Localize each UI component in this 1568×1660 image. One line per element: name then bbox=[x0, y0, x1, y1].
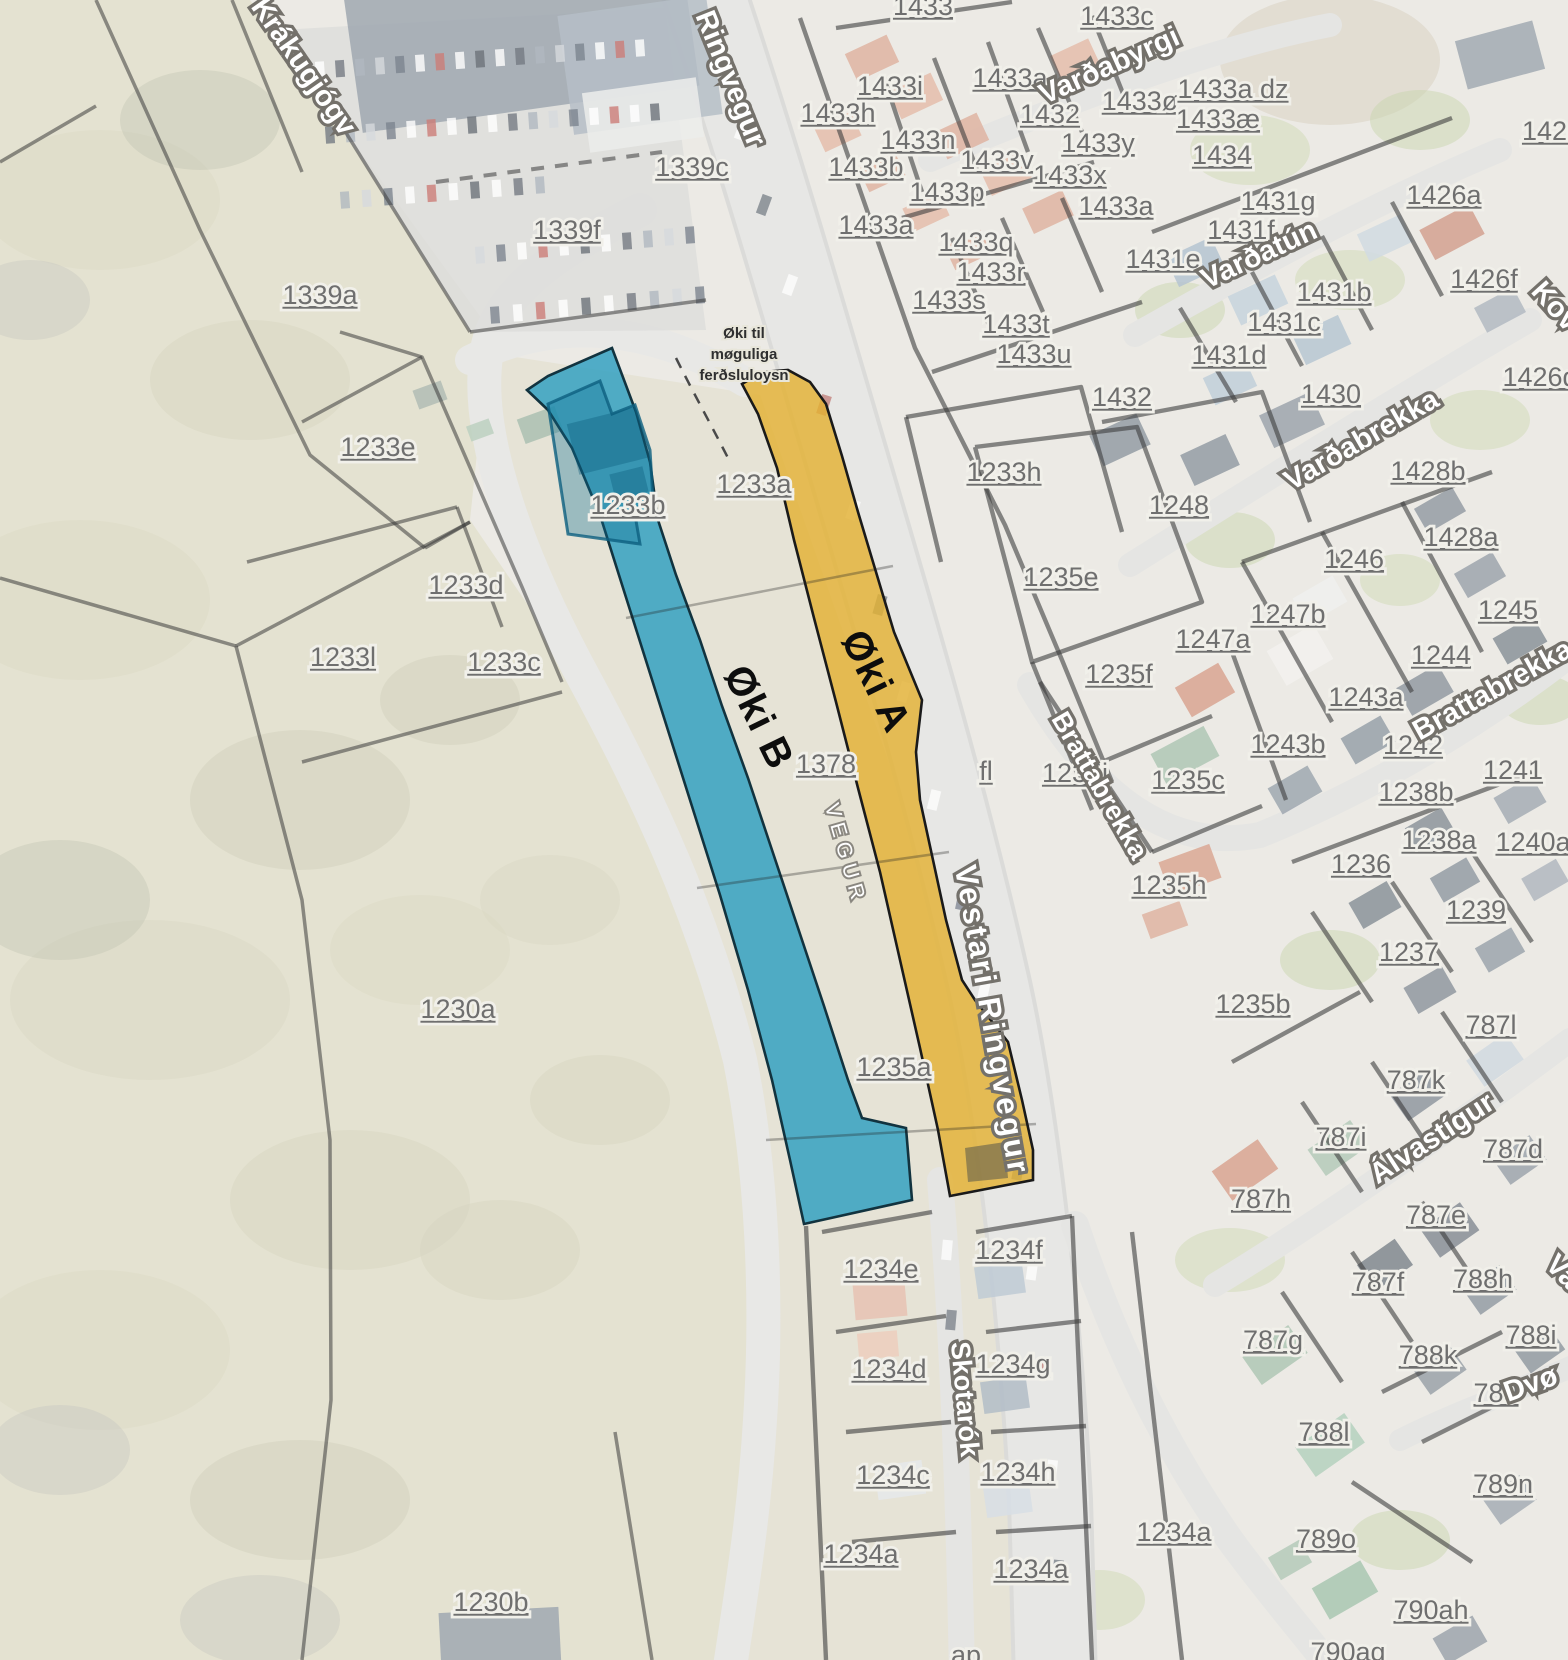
annotation-line: møguliga bbox=[711, 346, 778, 363]
parcel-label: 790ah bbox=[1393, 1595, 1468, 1625]
parcel-label: 1234f bbox=[975, 1235, 1043, 1265]
parcel-label: 1247b bbox=[1250, 599, 1325, 629]
parcel-label: 1433h bbox=[800, 98, 875, 128]
parcel-label: 1247a bbox=[1175, 624, 1251, 654]
annotation-line: Øki til bbox=[723, 325, 765, 342]
parcel-label: 1433i bbox=[857, 71, 923, 101]
parcel-label: 1235e bbox=[1023, 562, 1098, 592]
parcel-label: 1432 bbox=[1092, 382, 1152, 412]
parcel-label: 1431d bbox=[1191, 340, 1266, 370]
parcel-label: 1243b bbox=[1250, 729, 1325, 759]
parcel-label: 1434 bbox=[1192, 140, 1252, 170]
parcel-label: 1233a bbox=[716, 469, 792, 499]
parcel-label: 1433 bbox=[893, 0, 953, 21]
parcel-label: 1234a bbox=[1136, 1517, 1212, 1547]
parcel-label: 1243a bbox=[1328, 682, 1404, 712]
parcel-label: 1339a bbox=[282, 280, 358, 310]
parcel-label: 1433ø bbox=[1102, 86, 1179, 116]
parcel-label: 1239 bbox=[1446, 895, 1506, 925]
parcel-label: 1235a bbox=[856, 1052, 932, 1082]
parcel-label: 1234c bbox=[856, 1460, 930, 1490]
parcel-label: 1241 bbox=[1483, 755, 1543, 785]
parcel-label: 1233b bbox=[590, 490, 665, 520]
parcel-label: 1433æ bbox=[1176, 104, 1260, 134]
parcel-label: 1233h bbox=[966, 457, 1041, 487]
parcel-label: 1428a bbox=[1423, 522, 1499, 552]
annotation-line: ferðsluloysn bbox=[699, 367, 788, 384]
parcel-label: ap bbox=[951, 1640, 981, 1660]
parcel-label: 1234a bbox=[823, 1539, 899, 1569]
parcel-label: 1234d bbox=[851, 1354, 926, 1384]
parcel-label: 1433u bbox=[996, 339, 1071, 369]
parcel-label: 1234g bbox=[975, 1349, 1050, 1379]
parcel-label: 1426 bbox=[1522, 116, 1568, 146]
parcel-label: 1248 bbox=[1149, 490, 1209, 520]
parcel-label: 1431c bbox=[1247, 307, 1321, 337]
parcel-label: 1433s bbox=[912, 285, 986, 315]
parcel-label: 1433a dz bbox=[1177, 74, 1288, 104]
parcel-label: 1237 bbox=[1379, 937, 1439, 967]
parcel-label: 787f bbox=[1352, 1267, 1405, 1297]
parcel-label: 787h bbox=[1231, 1184, 1291, 1214]
parcel-label: 788l bbox=[1298, 1417, 1349, 1447]
parcel-label: 787k bbox=[1387, 1065, 1446, 1095]
map-svg: 14331433c1433i1433h1433a14321433ø1433y14… bbox=[0, 0, 1568, 1660]
parcel-label: 1235f bbox=[1085, 659, 1153, 689]
parcel-label: 788i bbox=[1505, 1320, 1556, 1350]
parcel-label: 1430 bbox=[1301, 379, 1361, 409]
parcel-label: 1433y bbox=[1061, 128, 1135, 158]
parcel-label: 1431g bbox=[1240, 186, 1315, 216]
parcel-label: fl bbox=[979, 756, 993, 786]
parcel-label: 1240a bbox=[1495, 827, 1568, 857]
parcel-label: 1245 bbox=[1478, 595, 1538, 625]
parcel-label: 1433c bbox=[1080, 1, 1154, 31]
parcel-label: 788k bbox=[1399, 1340, 1458, 1370]
parcel-label: 788h bbox=[1453, 1264, 1513, 1294]
parcel-label: 789o bbox=[1296, 1524, 1356, 1554]
parcel-label: 1234e bbox=[843, 1254, 918, 1284]
parcel-label: 1426a bbox=[1406, 180, 1482, 210]
parcel-label: 789n bbox=[1473, 1469, 1533, 1499]
parcel-label: 1339f bbox=[533, 215, 601, 245]
parcel-label: 790ag bbox=[1310, 1637, 1385, 1660]
parcel-label: 1246 bbox=[1324, 544, 1384, 574]
parcel-label: 1433t bbox=[982, 309, 1050, 339]
parcel-label: 1235h bbox=[1131, 870, 1206, 900]
parcel-label: 1236 bbox=[1331, 849, 1391, 879]
parcel-label: 1433b bbox=[828, 152, 903, 182]
parcel-label: 787l bbox=[1465, 1010, 1516, 1040]
map-canvas[interactable]: 14331433c1433i1433h1433a14321433ø1433y14… bbox=[0, 0, 1568, 1660]
parcel-label: 1431b bbox=[1296, 277, 1371, 307]
parcel-label: 787i bbox=[1315, 1122, 1366, 1152]
parcel-label: 787g bbox=[1243, 1325, 1303, 1355]
parcel-label: 1244 bbox=[1411, 640, 1471, 670]
parcel-label: 1378 bbox=[796, 749, 856, 779]
parcel-label: 1433q bbox=[938, 227, 1013, 257]
parcel-label: 1433a bbox=[838, 210, 914, 240]
parcel-label: 1230b bbox=[453, 1587, 528, 1617]
parcel-label: 1235b bbox=[1215, 989, 1290, 1019]
parcel-label: 1234a bbox=[993, 1554, 1069, 1584]
parcel-label: 1238b bbox=[1378, 777, 1453, 807]
parcel-label: 1428b bbox=[1390, 456, 1465, 486]
parcel-label: 1433a bbox=[1078, 191, 1154, 221]
parcel-label: 1426d bbox=[1502, 362, 1568, 392]
parcel-label: 1230a bbox=[420, 994, 496, 1024]
parcel-label: 1238a bbox=[1401, 825, 1477, 855]
parcel-label: 1233e bbox=[340, 432, 415, 462]
parcel-label: 787d bbox=[1483, 1134, 1543, 1164]
parcel-label: 1233l bbox=[310, 642, 376, 672]
parcel-label: 1433n bbox=[880, 125, 955, 155]
parcel-label: 1233d bbox=[428, 570, 503, 600]
parcel-label: 787e bbox=[1406, 1200, 1466, 1230]
parcel-label: 1433p bbox=[909, 177, 984, 207]
parcel-label: 1339c bbox=[655, 152, 729, 182]
parcel-label: 1431e bbox=[1125, 244, 1200, 274]
parcel-label: 1233c bbox=[467, 647, 541, 677]
parcel-label: 1234h bbox=[980, 1457, 1055, 1487]
aerial-wash-overlay bbox=[0, 0, 1568, 1660]
parcel-label: 1433x bbox=[1033, 160, 1107, 190]
parcel-label: 1235c bbox=[1151, 765, 1225, 795]
parcel-label: 1433v bbox=[960, 145, 1034, 175]
parcel-label: 1433r bbox=[956, 257, 1025, 287]
parcel-label: 1426f bbox=[1450, 264, 1518, 294]
